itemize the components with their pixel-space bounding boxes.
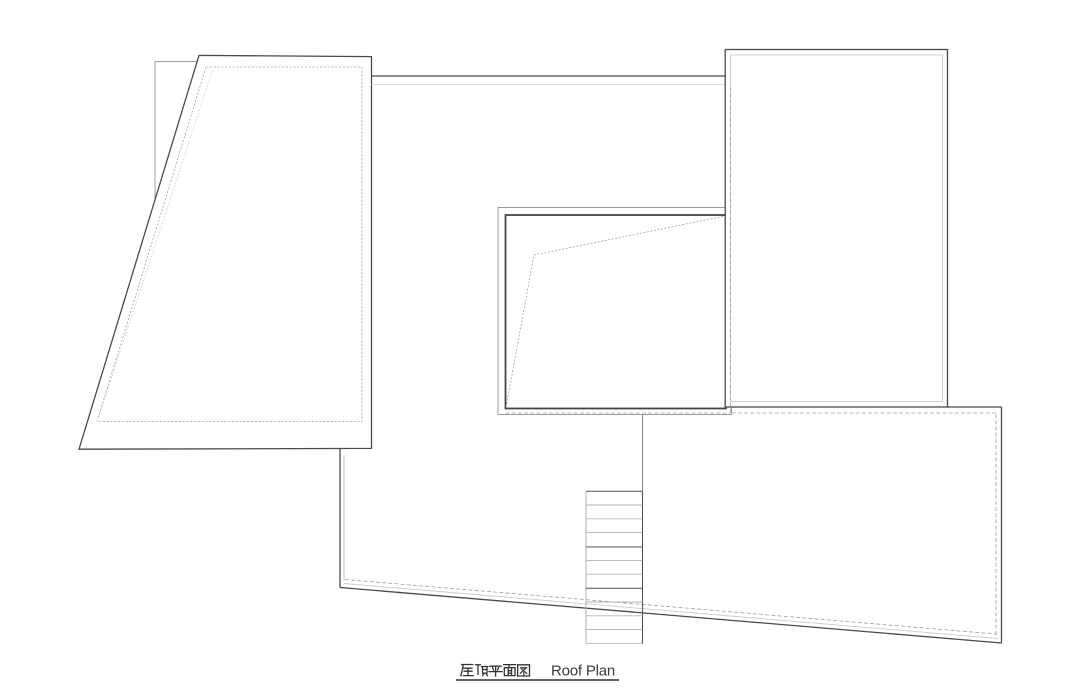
- svg-text:Roof Plan: Roof Plan: [551, 663, 615, 680]
